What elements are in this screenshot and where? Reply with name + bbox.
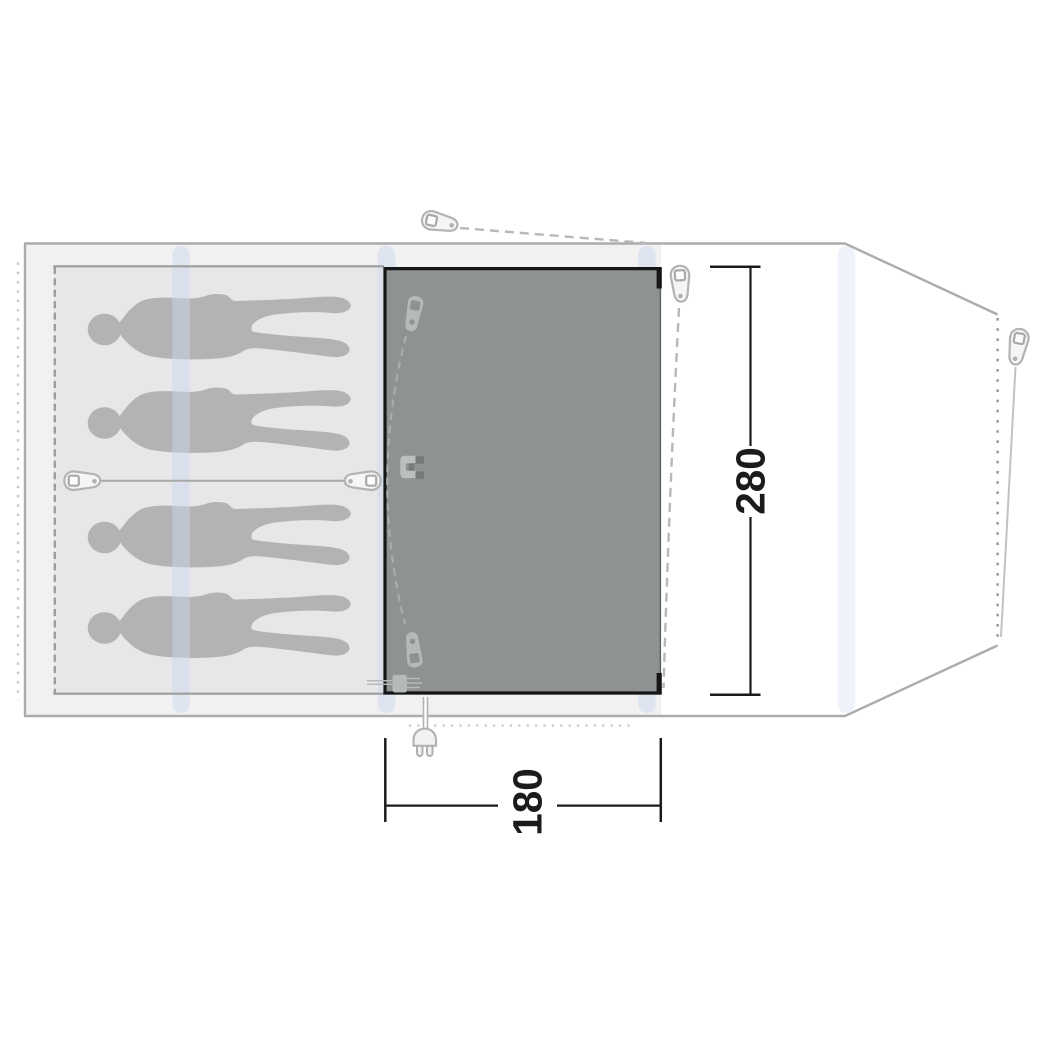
svg-text:280: 280 xyxy=(728,447,774,515)
svg-text:180: 180 xyxy=(505,768,551,836)
